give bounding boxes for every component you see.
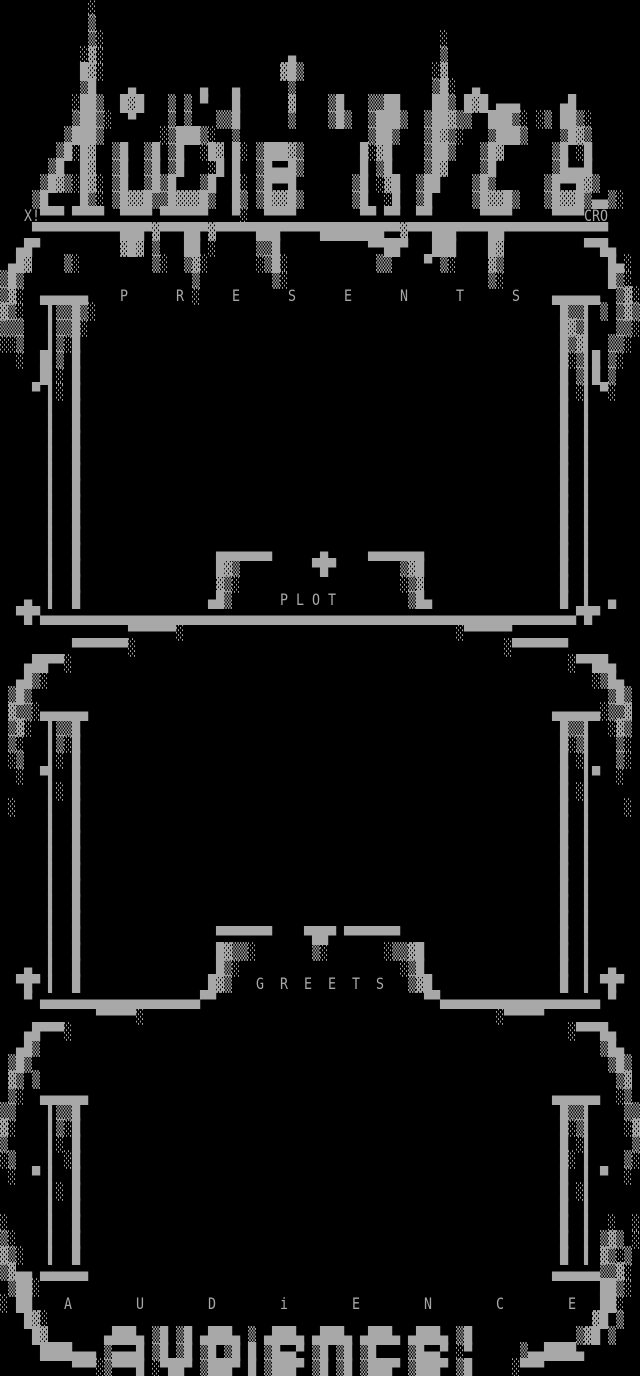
ansi-art: ░ ▒ ▒░: [0, 0, 532, 1376]
textmode-canvas: ░ ▒ ▒░: [0, 0, 640, 1376]
